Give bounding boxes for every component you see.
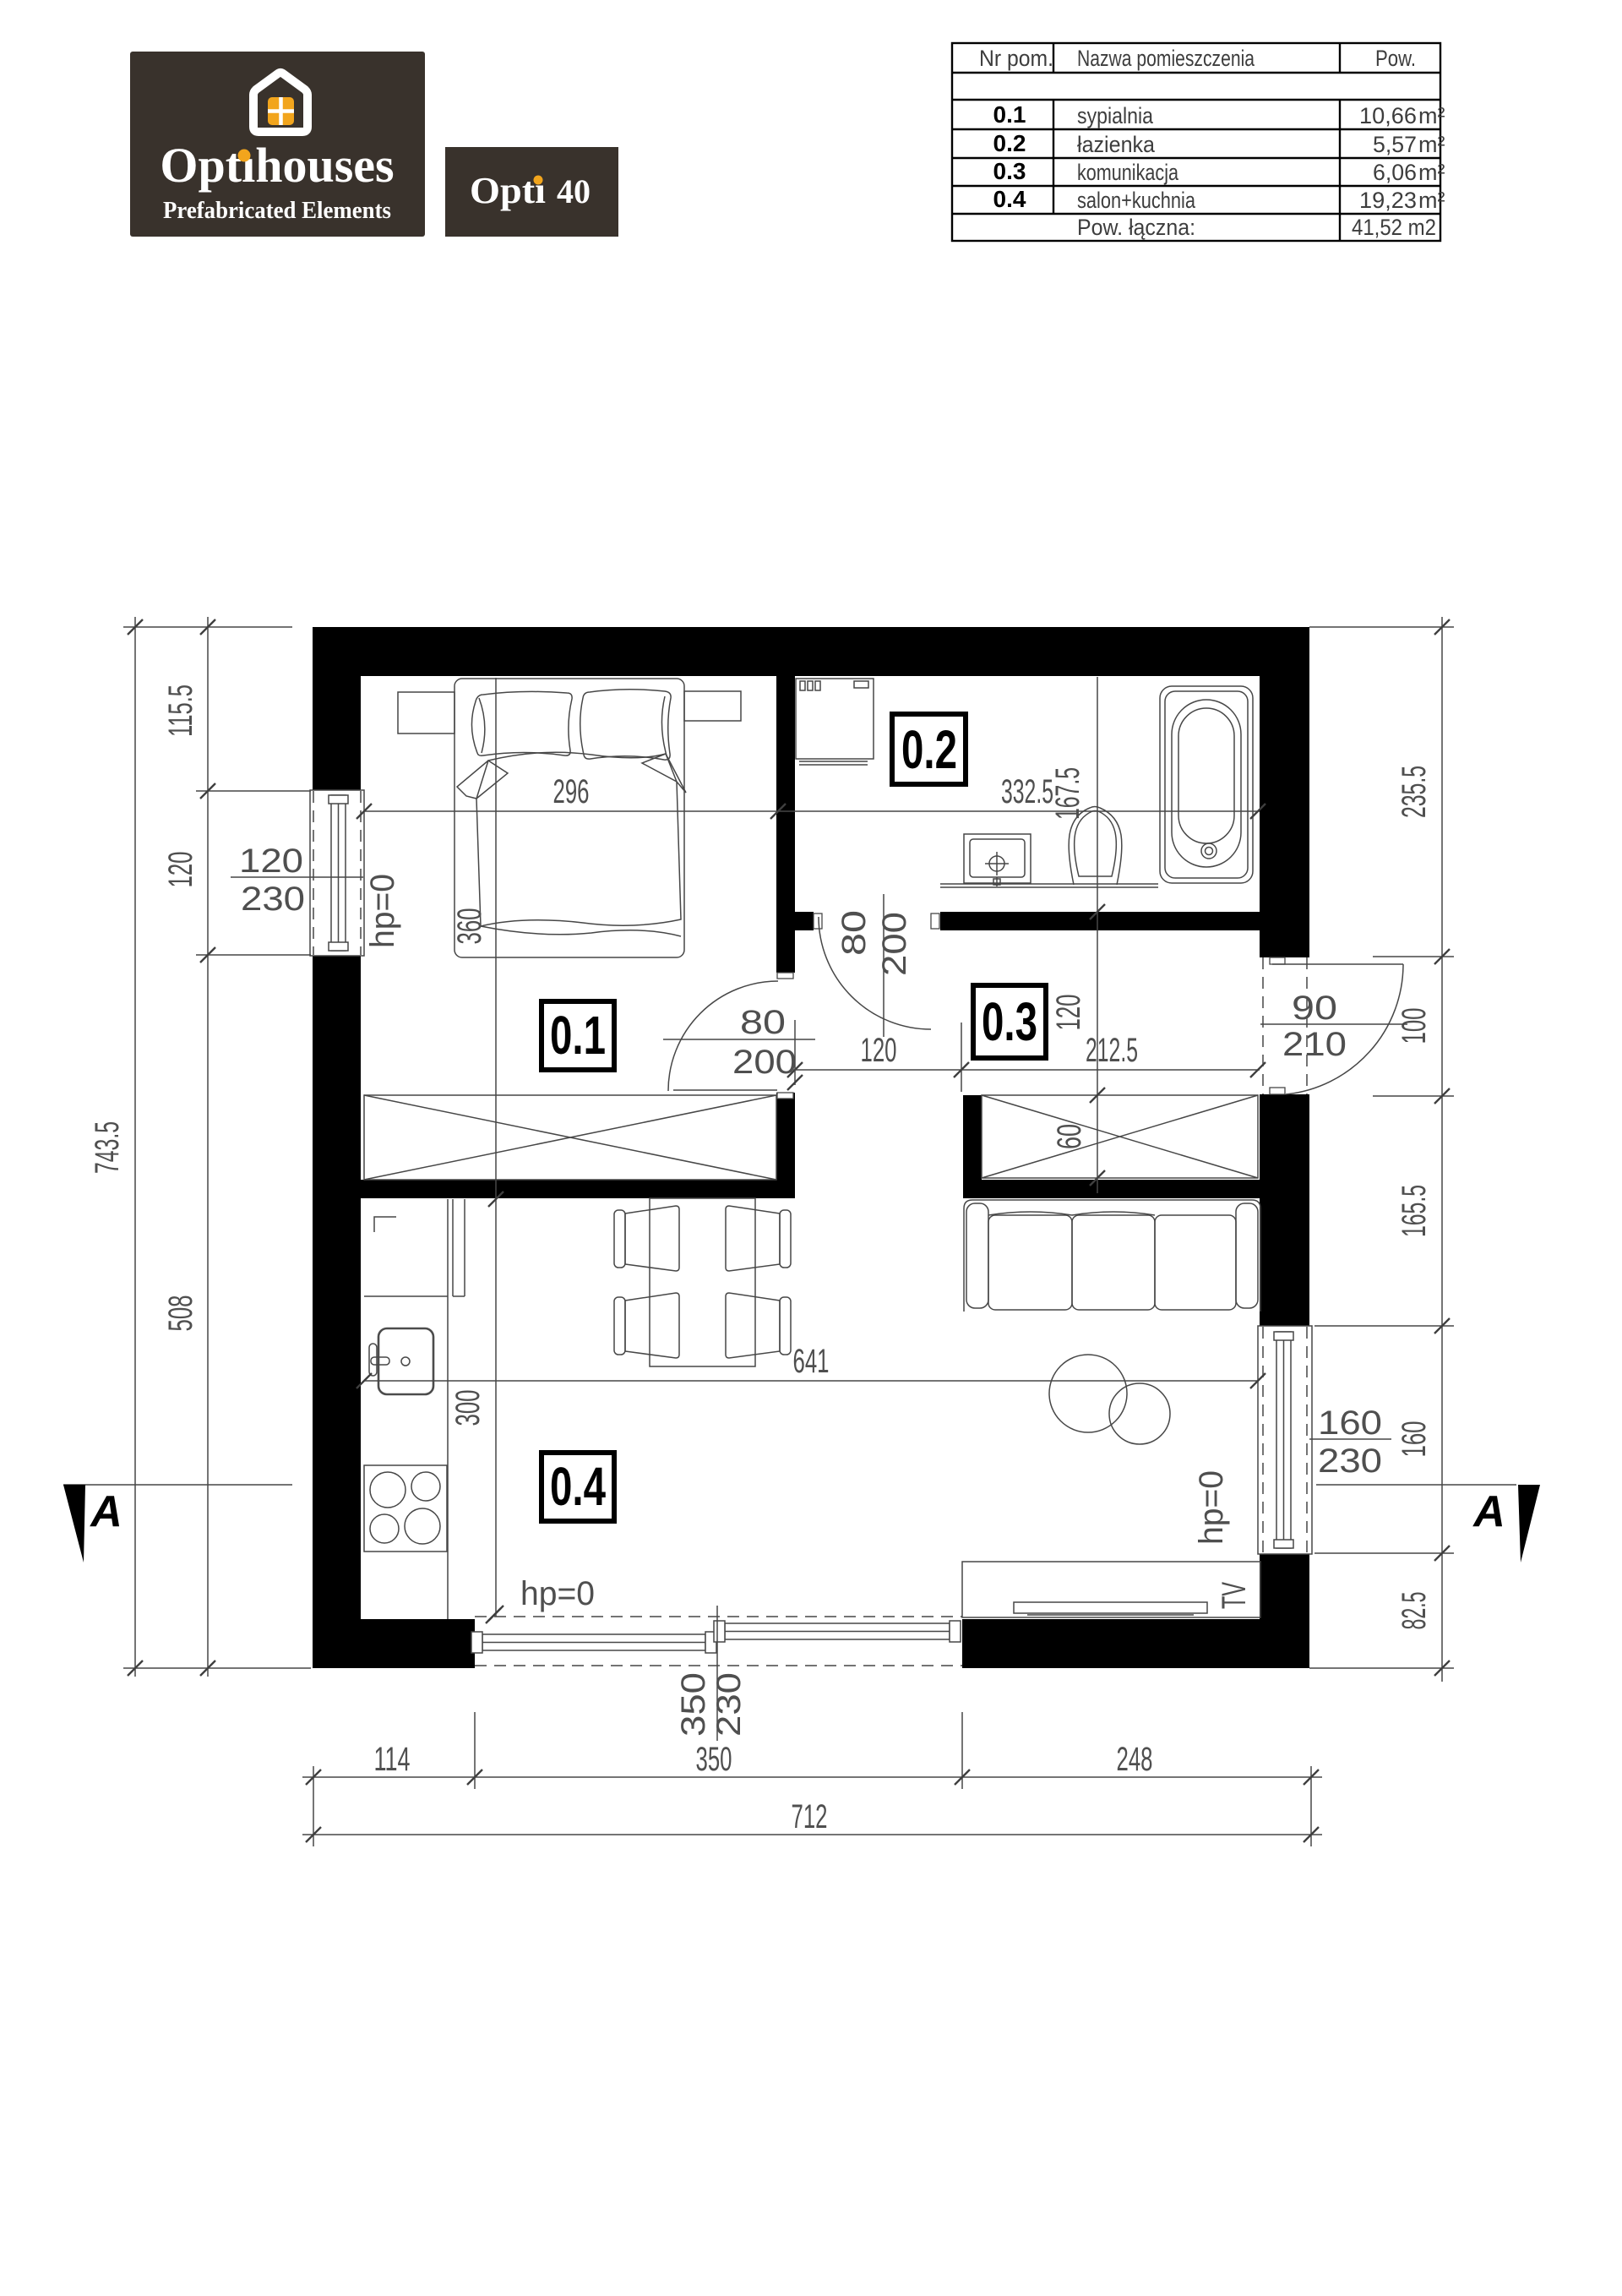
svg-text:300: 300 xyxy=(449,1390,487,1426)
svg-text:350: 350 xyxy=(696,1741,732,1778)
svg-text:160: 160 xyxy=(1318,1404,1382,1442)
svg-text:120: 120 xyxy=(1050,995,1087,1031)
svg-text:0.2: 0.2 xyxy=(993,130,1026,156)
svg-text:m²: m² xyxy=(1418,103,1445,128)
svg-text:641: 641 xyxy=(793,1343,830,1380)
svg-text:160: 160 xyxy=(1396,1421,1433,1458)
svg-text:salon+kuchnia: salon+kuchnia xyxy=(1077,188,1196,213)
svg-text:332.5: 332.5 xyxy=(1001,773,1053,810)
svg-text:165.5: 165.5 xyxy=(1396,1185,1433,1237)
svg-text:0.1: 0.1 xyxy=(550,1005,606,1066)
svg-text:sypialnia: sypialnia xyxy=(1077,103,1154,128)
svg-text:Optı: Optı xyxy=(470,170,546,211)
svg-text:0.3: 0.3 xyxy=(993,158,1026,184)
svg-text:hp=0: hp=0 xyxy=(364,874,401,948)
svg-text:Prefabricated Elements: Prefabricated Elements xyxy=(163,197,391,224)
svg-text:5,57: 5,57 xyxy=(1373,132,1417,157)
svg-text:248: 248 xyxy=(1117,1741,1153,1778)
svg-text:Optıhouses: Optıhouses xyxy=(160,138,394,193)
svg-text:komunikacja: komunikacja xyxy=(1077,160,1179,185)
svg-text:m²: m² xyxy=(1418,188,1445,213)
svg-text:743.5: 743.5 xyxy=(89,1121,126,1174)
svg-text:100: 100 xyxy=(1396,1008,1433,1044)
svg-text:TV: TV xyxy=(1216,1582,1253,1609)
svg-text:350: 350 xyxy=(675,1672,712,1737)
svg-text:hp=0: hp=0 xyxy=(1193,1470,1230,1545)
svg-text:m²: m² xyxy=(1418,132,1445,157)
svg-text:80: 80 xyxy=(740,1004,786,1041)
svg-text:60: 60 xyxy=(1051,1124,1088,1149)
svg-text:235.5: 235.5 xyxy=(1396,766,1433,818)
svg-text:19,23: 19,23 xyxy=(1359,188,1417,213)
svg-text:167.5: 167.5 xyxy=(1049,767,1086,820)
svg-text:A: A xyxy=(89,1487,122,1536)
svg-text:210: 210 xyxy=(1282,1026,1347,1063)
svg-text:212.5: 212.5 xyxy=(1086,1032,1138,1069)
svg-text:82.5: 82.5 xyxy=(1396,1592,1433,1630)
svg-text:łazienka: łazienka xyxy=(1077,132,1156,157)
svg-text:120: 120 xyxy=(239,843,303,880)
svg-text:hp=0: hp=0 xyxy=(520,1575,595,1612)
svg-text:230: 230 xyxy=(241,881,305,918)
svg-text:230: 230 xyxy=(710,1672,748,1737)
svg-text:115.5: 115.5 xyxy=(162,684,199,737)
svg-text:m²: m² xyxy=(1418,160,1445,185)
svg-text:0.2: 0.2 xyxy=(901,719,957,780)
svg-text:120: 120 xyxy=(162,852,199,888)
svg-text:0.4: 0.4 xyxy=(993,186,1026,212)
svg-text:200: 200 xyxy=(732,1044,797,1081)
svg-text:712: 712 xyxy=(792,1798,828,1835)
svg-text:0.4: 0.4 xyxy=(550,1456,606,1517)
svg-text:Nr pom.: Nr pom. xyxy=(979,46,1053,71)
svg-text:90: 90 xyxy=(1292,990,1337,1027)
svg-text:230: 230 xyxy=(1318,1442,1382,1480)
svg-text:296: 296 xyxy=(553,773,590,810)
svg-text:10,66: 10,66 xyxy=(1359,103,1417,128)
svg-text:Pow. łączna:: Pow. łączna: xyxy=(1077,215,1195,240)
svg-text:A: A xyxy=(1472,1487,1505,1536)
svg-text:0.1: 0.1 xyxy=(993,101,1026,128)
svg-text:40: 40 xyxy=(557,172,591,210)
svg-text:41,52 m2: 41,52 m2 xyxy=(1352,215,1436,240)
svg-text:508: 508 xyxy=(162,1295,199,1332)
svg-text:360: 360 xyxy=(451,908,488,945)
svg-text:200: 200 xyxy=(876,912,913,976)
svg-text:80: 80 xyxy=(835,910,873,956)
svg-text:120: 120 xyxy=(861,1032,897,1069)
svg-text:114: 114 xyxy=(374,1741,411,1778)
svg-text:Nazwa pomieszczenia: Nazwa pomieszczenia xyxy=(1077,46,1255,71)
svg-text:Pow.: Pow. xyxy=(1375,46,1416,71)
svg-text:0.3: 0.3 xyxy=(982,991,1037,1052)
svg-text:6,06: 6,06 xyxy=(1373,160,1417,185)
